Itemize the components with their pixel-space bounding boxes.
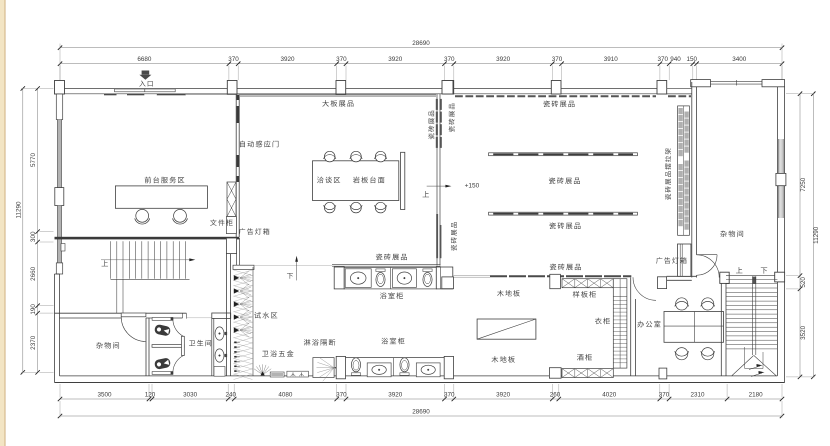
svg-text:150: 150 — [687, 56, 698, 63]
svg-text:3920: 3920 — [496, 392, 511, 399]
svg-text:28690: 28690 — [412, 40, 430, 47]
svg-text:370: 370 — [336, 392, 347, 399]
svg-text:370: 370 — [228, 56, 239, 63]
svg-text:11290: 11290 — [15, 201, 22, 219]
svg-text:3920: 3920 — [280, 56, 295, 63]
svg-text:3910: 3910 — [604, 56, 619, 63]
svg-text:520: 520 — [800, 277, 807, 288]
svg-text:3030: 3030 — [183, 392, 198, 399]
svg-text:370: 370 — [444, 56, 455, 63]
svg-text:+150: +150 — [465, 182, 480, 189]
svg-text:7250: 7250 — [800, 177, 807, 192]
svg-text:370: 370 — [444, 392, 455, 399]
svg-text:6680: 6680 — [137, 56, 152, 63]
svg-text:28690: 28690 — [412, 409, 430, 416]
svg-text:370: 370 — [659, 392, 670, 399]
svg-text:240: 240 — [225, 392, 236, 399]
svg-text:260: 260 — [550, 392, 561, 399]
svg-text:3920: 3920 — [388, 392, 403, 399]
svg-text:4080: 4080 — [278, 392, 293, 399]
svg-text:2660: 2660 — [30, 266, 37, 281]
svg-text:2370: 2370 — [30, 335, 37, 350]
svg-text:370: 370 — [552, 56, 563, 63]
svg-text:11290: 11290 — [813, 226, 820, 244]
svg-text:5770: 5770 — [30, 153, 37, 168]
svg-text:4020: 4020 — [602, 392, 617, 399]
svg-text:3500: 3500 — [97, 392, 112, 399]
svg-text:3920: 3920 — [496, 56, 511, 63]
svg-text:300: 300 — [30, 231, 37, 242]
svg-text:190: 190 — [30, 304, 37, 315]
svg-text:3520: 3520 — [800, 325, 807, 340]
svg-text:370: 370 — [658, 56, 669, 63]
svg-text:3400: 3400 — [732, 56, 747, 63]
svg-text:2180: 2180 — [749, 392, 764, 399]
svg-text:370: 370 — [336, 56, 347, 63]
svg-text:940: 940 — [670, 56, 681, 63]
svg-text:3920: 3920 — [388, 56, 403, 63]
svg-text:120: 120 — [145, 392, 156, 399]
svg-text:2310: 2310 — [690, 392, 705, 399]
